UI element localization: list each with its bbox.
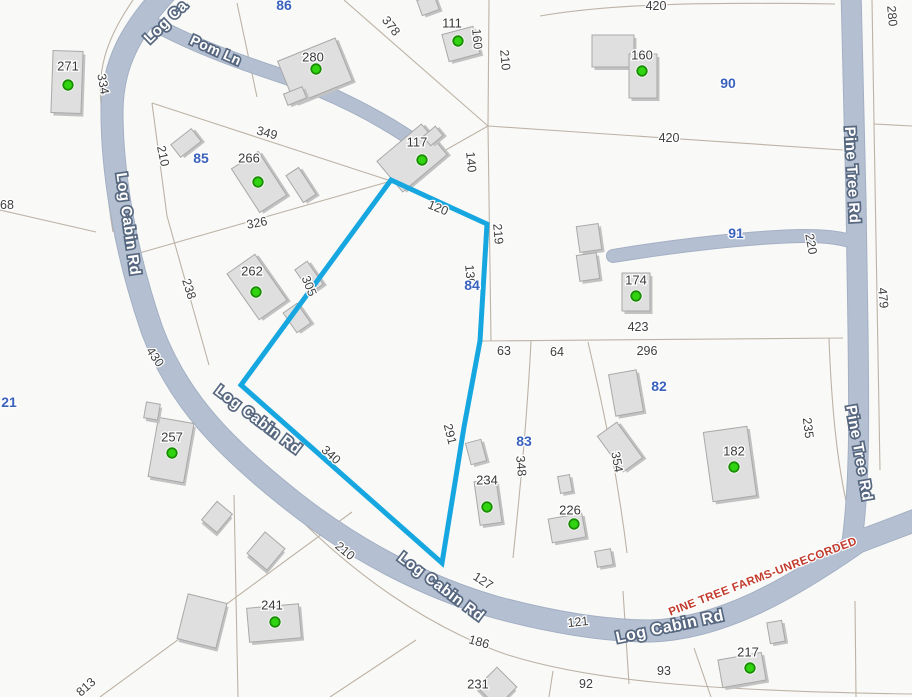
- house-number-label: 231: [467, 677, 489, 692]
- lot-number-label: 82: [651, 378, 667, 394]
- house-number-label: 257: [161, 430, 183, 445]
- building-footprint: [767, 620, 785, 643]
- dwelling-point-icon: [636, 65, 649, 78]
- dimension-label: 235: [800, 417, 816, 439]
- dwelling-point-icon: [744, 662, 757, 675]
- parcel-boundary-line: [694, 648, 711, 697]
- lot-number-label: 21: [1, 394, 17, 410]
- building[interactable]: [576, 252, 602, 284]
- lot-number-label: 91: [728, 225, 744, 241]
- dimension-label: 280: [884, 5, 900, 27]
- dwelling-point-icon: [452, 35, 465, 48]
- dwelling-point-icon: [269, 616, 282, 629]
- building-footprint: [576, 224, 601, 253]
- house-number-label: 111: [442, 16, 462, 31]
- dwelling-point-icon: [166, 447, 179, 460]
- building[interactable]: [286, 166, 320, 205]
- lot-number-label: 90: [720, 75, 736, 91]
- dimension-label: 378: [379, 13, 403, 38]
- building-footprint: [576, 253, 599, 282]
- dimension-label: 93: [657, 664, 671, 678]
- dwelling-point-icon: [630, 290, 643, 303]
- dwelling-point-icon: [481, 501, 494, 514]
- building[interactable]: [609, 369, 647, 419]
- house-number-label: 266: [238, 151, 260, 166]
- house-number-label: 271: [57, 59, 79, 74]
- building-footprint: [247, 532, 285, 570]
- building[interactable]: [767, 620, 788, 647]
- parcel-boundary-line: [540, 3, 835, 16]
- log-cabin-rd: [112, 0, 912, 631]
- dwelling-point-icon: [728, 461, 741, 474]
- dimension-label: 348: [513, 455, 529, 477]
- parcel-boundary-line: [237, 3, 257, 97]
- building-footprint: [144, 402, 161, 420]
- building-footprint: [558, 475, 573, 494]
- dimension-label: 296: [637, 344, 658, 358]
- building-footprint: [592, 35, 634, 67]
- dimension-label: 220: [802, 233, 819, 256]
- house-number-label: 182: [723, 444, 745, 459]
- dimension-label: 420: [659, 131, 680, 145]
- dimension-label: 291: [441, 422, 460, 446]
- dimension-label: 423: [628, 320, 649, 334]
- map-svg[interactable]: Log CaPom LnLog Cabin RdLog Cabin RdLog …: [0, 0, 912, 697]
- dimension-label: 420: [646, 0, 667, 13]
- dimension-label: 63: [497, 344, 511, 358]
- building-footprint: [548, 513, 586, 543]
- house-number-label: 174: [625, 273, 647, 288]
- building[interactable]: [465, 439, 489, 468]
- dimension-label: 354: [608, 451, 625, 474]
- dimension-label: 92: [579, 677, 593, 691]
- lot-number-label: 86: [276, 0, 292, 13]
- parcel-boundary-line: [513, 341, 531, 558]
- building[interactable]: [595, 548, 617, 570]
- dimension-label: 160: [469, 28, 485, 50]
- dimension-label: 238: [179, 277, 199, 301]
- building[interactable]: [417, 0, 443, 18]
- house-number-label: 217: [737, 645, 759, 660]
- building[interactable]: [576, 223, 604, 255]
- dimension-label: 813: [74, 675, 99, 697]
- dimension-label: 326: [245, 214, 268, 232]
- lot-number-label: 83: [516, 433, 532, 449]
- dimension-label: 210: [497, 49, 513, 71]
- road-label: Pom Ln: [188, 32, 244, 69]
- dimension-label: 121: [567, 614, 589, 630]
- dimension-label: 479: [875, 287, 891, 309]
- dimension-label: 334: [94, 73, 111, 96]
- log-cabin-rd-casing: [112, 0, 912, 631]
- house-number-label: 234: [476, 473, 498, 488]
- lot-number-label: 85: [193, 150, 209, 166]
- building-footprint: [202, 501, 233, 532]
- dimension-label: 210: [154, 144, 172, 167]
- parcel-boundary-line: [855, 601, 856, 697]
- house-number-label: 262: [241, 264, 263, 279]
- parcel-boundary-line: [330, 640, 416, 697]
- house-number-label: 241: [261, 598, 283, 613]
- dimension-label: 68: [0, 198, 14, 212]
- parcel-map-canvas[interactable]: Log CaPom LnLog Cabin RdLog Cabin RdLog …: [0, 0, 912, 697]
- dimension-label: 219: [490, 223, 506, 245]
- dwelling-point-icon: [252, 176, 265, 189]
- house-number-label: 117: [407, 135, 428, 150]
- parcel-boundary-line: [480, 338, 843, 341]
- house-number-label: 160: [631, 48, 653, 63]
- parcel-boundary-line: [488, 0, 489, 126]
- dimension-label: 186: [467, 632, 491, 651]
- selected-parcel-outline[interactable]: [241, 180, 487, 563]
- dimension-label: 340: [319, 443, 344, 467]
- dwelling-point-icon: [568, 518, 581, 531]
- house-number-label: 226: [559, 503, 581, 518]
- building[interactable]: [245, 532, 287, 574]
- dimension-label: 349: [255, 124, 279, 143]
- lot-number-label: 84: [464, 277, 480, 293]
- building[interactable]: [176, 594, 229, 652]
- dimension-label: 140: [463, 151, 479, 173]
- dimension-label: 64: [550, 345, 564, 359]
- dwelling-point-icon: [250, 286, 263, 299]
- building[interactable]: [200, 501, 235, 536]
- parcel-boundary-line: [272, 490, 912, 694]
- house-number-label: 280: [302, 50, 324, 65]
- dwelling-point-icon: [62, 79, 75, 92]
- building[interactable]: [143, 402, 163, 424]
- parcel-boundary-line: [0, 210, 96, 232]
- parcel-boundary-line: [549, 671, 553, 697]
- building[interactable]: [558, 474, 576, 496]
- dwelling-point-icon: [416, 154, 429, 167]
- building[interactable]: [548, 513, 589, 546]
- dimension-label: 120: [426, 198, 451, 219]
- building-footprint: [595, 549, 614, 568]
